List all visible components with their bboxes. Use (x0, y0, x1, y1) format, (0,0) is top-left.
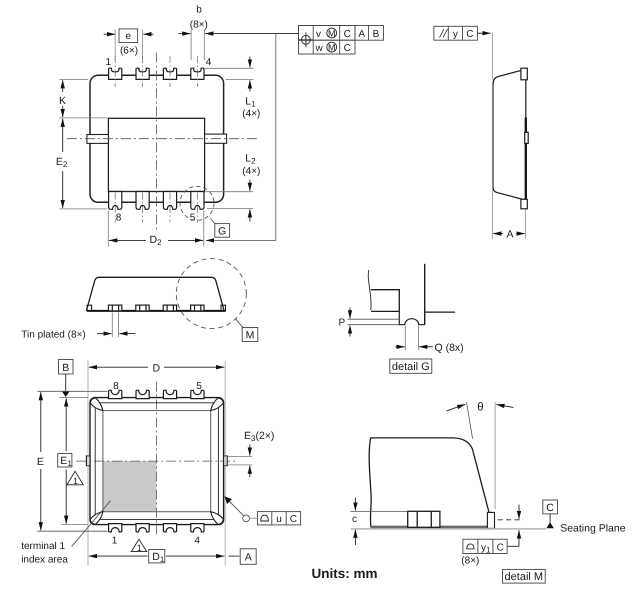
svg-text:(6×): (6×) (120, 46, 138, 57)
svg-text:Seating Plane: Seating Plane (560, 522, 626, 534)
svg-text:Units: mm: Units: mm (312, 566, 378, 581)
svg-text:8: 8 (116, 213, 122, 224)
svg-text:K: K (59, 95, 66, 107)
svg-text:A: A (358, 29, 365, 40)
svg-text:c: c (352, 514, 357, 525)
svg-text:C: C (497, 542, 504, 553)
svg-text:4: 4 (194, 536, 200, 547)
svg-text:C: C (466, 29, 473, 40)
svg-text:C: C (290, 514, 297, 525)
svg-text:C: C (344, 29, 351, 40)
svg-text:B: B (373, 29, 380, 40)
svg-text:A: A (245, 552, 252, 564)
svg-text:u: u (276, 514, 282, 525)
svg-text:G: G (218, 225, 226, 237)
svg-text:M: M (246, 330, 255, 342)
svg-text:1: 1 (73, 476, 78, 486)
svg-text:v: v (316, 29, 321, 40)
svg-text:index area: index area (21, 554, 68, 565)
svg-text:P: P (339, 318, 346, 329)
svg-text:C: C (344, 43, 351, 54)
svg-text:1: 1 (137, 543, 142, 553)
svg-text:1: 1 (105, 57, 111, 68)
svg-text:5: 5 (190, 213, 196, 224)
svg-text:(8×): (8×) (461, 556, 479, 567)
svg-text:A: A (506, 229, 513, 241)
svg-text:w: w (315, 43, 324, 54)
svg-text:Q (8x): Q (8x) (435, 342, 464, 354)
svg-text:y: y (453, 29, 458, 40)
svg-text:4: 4 (206, 57, 212, 68)
svg-text:e: e (126, 31, 132, 42)
svg-text:5: 5 (196, 381, 202, 392)
svg-text:detail G: detail G (392, 361, 430, 373)
svg-text:M: M (328, 29, 336, 39)
svg-text:8: 8 (113, 381, 119, 392)
svg-text:(4×): (4×) (242, 166, 260, 177)
svg-text:Tin plated (8×): Tin plated (8×) (21, 330, 85, 341)
svg-text:(8×): (8×) (190, 20, 208, 31)
svg-text:B: B (62, 362, 69, 374)
svg-text:b: b (196, 5, 202, 16)
svg-text:E3(2×): E3(2×) (244, 430, 274, 443)
svg-text:terminal 1: terminal 1 (21, 541, 65, 552)
svg-text:(4×): (4×) (242, 109, 260, 120)
svg-text:E: E (37, 456, 44, 468)
svg-text:detail M: detail M (505, 571, 544, 583)
svg-text:D: D (153, 362, 161, 374)
svg-text:1: 1 (112, 536, 118, 547)
svg-text:θ: θ (477, 401, 483, 413)
svg-text:C: C (546, 502, 554, 514)
svg-text:M: M (328, 43, 336, 53)
